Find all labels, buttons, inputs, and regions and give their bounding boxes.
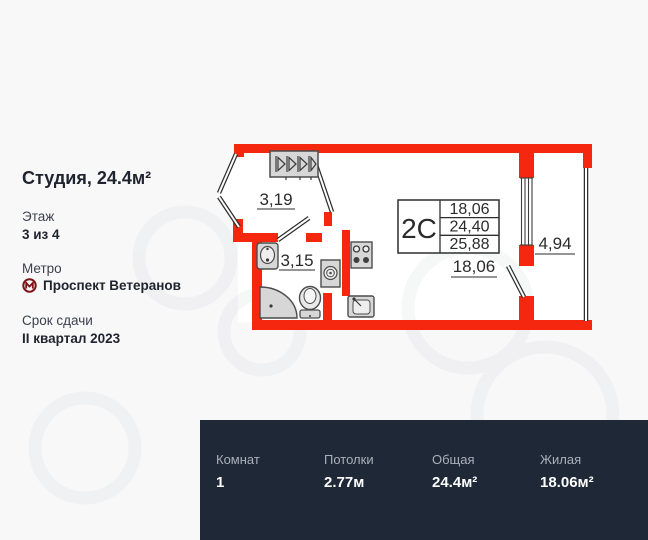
stat-rooms: Комнат 1 — [216, 452, 324, 540]
page-title: Студия, 24.4м² — [22, 168, 151, 189]
toilet-icon — [300, 287, 321, 319]
apartment-type: 2С — [401, 213, 437, 244]
bottom-bar: Комнат 1 Потолки 2.77м Общая 24.4м² Жила… — [200, 420, 648, 540]
table-value-1: 18,06 — [449, 201, 489, 218]
stat-total-area-value: 24.4м² — [432, 474, 540, 491]
listing-floorplan-card: 2С 18,06 24,40 25,88 3,19 3,15 18,06 4,9… — [0, 0, 648, 540]
stat-living-area-value: 18.06м² — [540, 474, 648, 491]
stat-ceiling-value: 2.77м — [324, 474, 432, 491]
stat-ceiling: Потолки 2.77м — [324, 452, 432, 540]
stat-total-area-label: Общая — [432, 452, 540, 467]
stat-living-area-label: Жилая — [540, 452, 648, 467]
apartment-info-table: 2С 18,06 24,40 25,88 — [398, 200, 499, 253]
stove-icon — [351, 242, 372, 268]
stat-total-area: Общая 24.4м² — [432, 452, 540, 540]
metro-logo-icon — [22, 278, 37, 293]
floor-value: 3 из 4 — [22, 227, 60, 242]
stat-ceiling-label: Потолки — [324, 452, 432, 467]
metro-station-row: Проспект Ветеранов — [22, 278, 181, 293]
wardrobe-hangers-icon — [270, 151, 318, 180]
washing-machine-icon — [321, 260, 340, 287]
metro-station: Проспект Ветеранов — [43, 278, 181, 293]
deadline-label: Срок сдачи — [22, 313, 93, 328]
hall-area-label: 3,19 — [259, 190, 292, 209]
kitchen-sink-icon — [348, 296, 374, 317]
bath-sink-icon — [257, 243, 278, 269]
table-value-2: 24,40 — [449, 219, 489, 236]
bathroom-area-label: 3,15 — [280, 251, 313, 270]
balcony-area-label: 4,94 — [538, 234, 571, 253]
metro-label: Метро — [22, 261, 62, 276]
stat-rooms-value: 1 — [216, 474, 324, 491]
stat-rooms-label: Комнат — [216, 452, 324, 467]
deadline-value: II квартал 2023 — [22, 331, 120, 346]
floor-label: Этаж — [22, 209, 54, 224]
room-width-label: 18,06 — [453, 257, 496, 276]
table-value-3: 25,88 — [449, 236, 489, 253]
listing-sidebar: Студия, 24.4м² Этаж 3 из 4 Метро Проспек… — [0, 0, 216, 420]
stat-living-area: Жилая 18.06м² — [540, 452, 648, 540]
